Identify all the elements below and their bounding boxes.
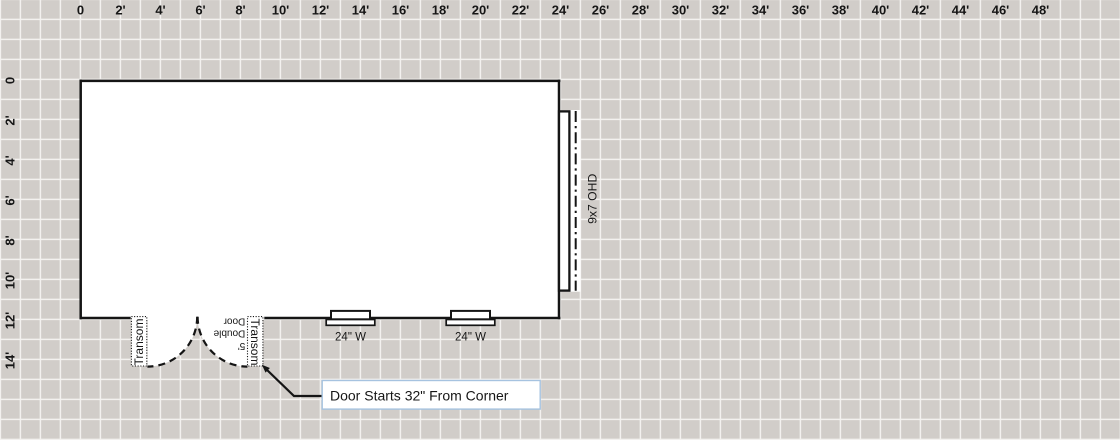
svg-text:10': 10' xyxy=(3,272,18,290)
svg-text:9x7 OHD: 9x7 OHD xyxy=(585,174,599,224)
svg-text:2': 2' xyxy=(115,2,125,17)
svg-text:6': 6' xyxy=(3,195,18,205)
svg-text:30': 30' xyxy=(672,2,690,17)
svg-text:Transom: Transom xyxy=(248,319,262,366)
svg-text:14': 14' xyxy=(3,352,18,370)
svg-text:18': 18' xyxy=(432,2,450,17)
svg-text:48': 48' xyxy=(1032,2,1050,17)
svg-text:40': 40' xyxy=(872,2,890,17)
svg-text:0: 0 xyxy=(3,77,18,84)
svg-text:22': 22' xyxy=(512,2,530,17)
svg-text:42': 42' xyxy=(912,2,930,17)
svg-text:2': 2' xyxy=(3,115,18,125)
svg-text:28': 28' xyxy=(632,2,650,17)
svg-text:12': 12' xyxy=(3,312,18,330)
svg-text:24" W: 24" W xyxy=(455,331,486,343)
svg-text:38': 38' xyxy=(832,2,850,17)
svg-text:14': 14' xyxy=(352,2,370,17)
svg-text:4': 4' xyxy=(155,2,165,17)
svg-text:24" W: 24" W xyxy=(335,331,366,343)
svg-text:36': 36' xyxy=(792,2,810,17)
svg-text:0: 0 xyxy=(77,2,84,17)
svg-text:26': 26' xyxy=(592,2,610,17)
svg-text:20': 20' xyxy=(472,2,490,17)
svg-text:Door: Door xyxy=(223,316,245,327)
svg-text:5': 5' xyxy=(238,340,246,351)
svg-text:34': 34' xyxy=(752,2,770,17)
svg-text:12': 12' xyxy=(312,2,330,17)
svg-text:32': 32' xyxy=(712,2,730,17)
svg-text:46': 46' xyxy=(992,2,1010,17)
svg-text:10': 10' xyxy=(272,2,290,17)
svg-text:44': 44' xyxy=(952,2,970,17)
svg-text:16': 16' xyxy=(392,2,410,17)
svg-text:Transom: Transom xyxy=(132,319,146,366)
svg-text:8': 8' xyxy=(3,235,18,245)
svg-text:Double: Double xyxy=(213,328,245,339)
svg-text:24': 24' xyxy=(552,2,570,17)
svg-text:Door Starts 32" From Corner: Door Starts 32" From Corner xyxy=(330,387,509,403)
svg-text:8': 8' xyxy=(235,2,245,17)
svg-text:6': 6' xyxy=(195,2,205,17)
svg-text:4': 4' xyxy=(3,155,18,165)
